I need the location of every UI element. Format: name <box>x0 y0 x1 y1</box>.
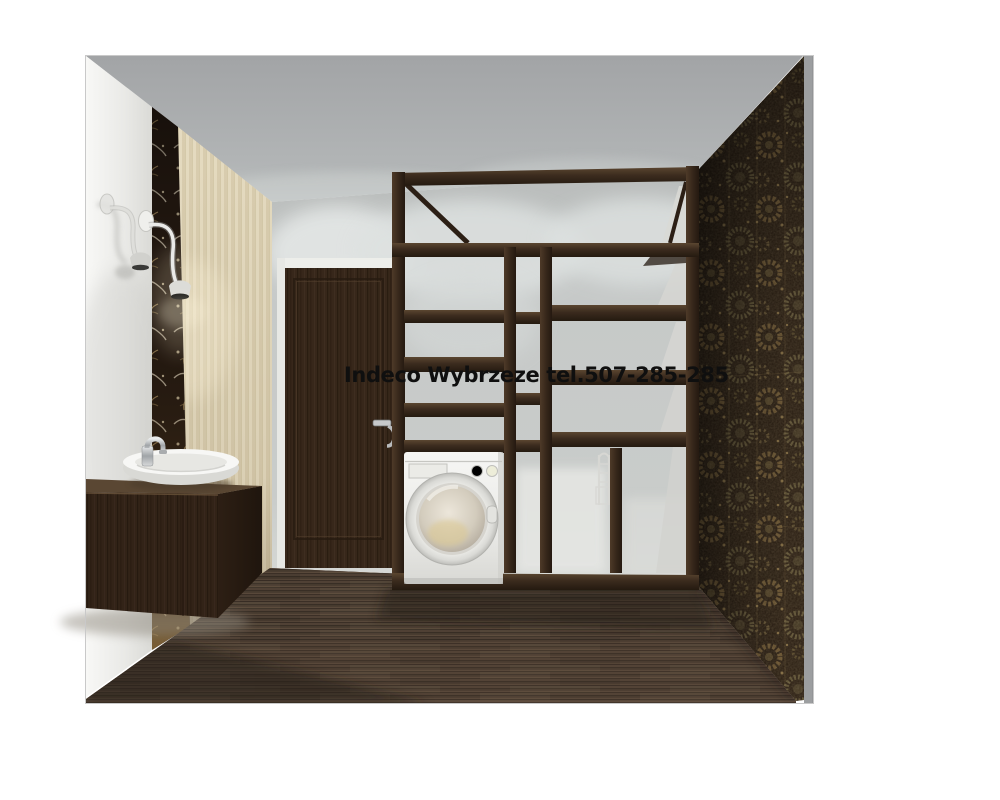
shelf-left-3 <box>404 403 504 417</box>
divider-3 <box>610 448 622 573</box>
washing-machine <box>404 452 503 584</box>
door-casing-left <box>277 258 285 573</box>
shelf-right-1 <box>552 305 686 321</box>
interior-render: Indeco Wybrzeze tel.507-285-285 <box>0 0 1000 800</box>
shelf-left-1 <box>404 310 504 323</box>
shelf-mid-2 <box>516 393 540 405</box>
washer-knob <box>472 466 483 477</box>
door-casing-top <box>277 258 393 268</box>
watermark-text: Indeco Wybrzeze tel.507-285-285 <box>344 364 729 387</box>
interior-door <box>277 258 394 573</box>
shelf-mid-1 <box>516 312 540 324</box>
divider-2 <box>540 247 552 573</box>
shelf-left-4 <box>404 440 504 453</box>
washer-knob-2 <box>487 466 498 477</box>
shelf-mid-3 <box>516 440 540 452</box>
shelf-right-3 <box>552 432 686 447</box>
washer-door-handle <box>487 506 497 523</box>
divider-1 <box>504 247 516 573</box>
